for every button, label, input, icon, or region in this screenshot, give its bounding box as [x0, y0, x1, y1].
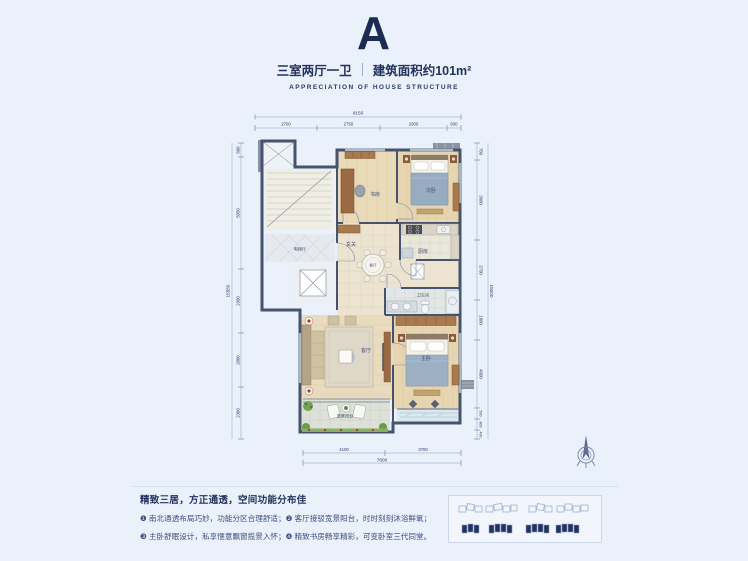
floor-plan-drawing: 电梯厅 书房 次卧 玄关 餐厅 厨房 卫生间 客厅 主卧 宽景阳台 9150 2…	[225, 103, 510, 481]
dim-left-4: 2000	[236, 355, 241, 365]
dim-right-2: 3600	[479, 195, 484, 205]
footer-divider	[132, 486, 618, 487]
label-study: 书房	[370, 191, 380, 198]
dim-top-4: 600	[450, 122, 458, 127]
site-buildings-outline-row	[459, 503, 588, 512]
dim-right-6: 500	[479, 411, 483, 417]
label-elevator-hall: 电梯厅	[294, 246, 307, 253]
selling-points-title: 精致三居，方正通透，空间功能分布佳	[140, 492, 307, 506]
dim-bottom-1: 4100	[339, 447, 349, 452]
dim-chain-left: 15550 600 5050 2900 2000 2300	[226, 143, 245, 439]
area-text: 建筑面积约101m²	[373, 60, 472, 79]
dim-right-5: 4000	[479, 369, 484, 379]
subtitle-en: APPRECIATION OF HOUSE STRUCTURE	[0, 84, 748, 91]
label-foyer: 玄关	[346, 241, 356, 248]
site-buildings-filled-row	[462, 524, 579, 533]
dim-top-1: 2700	[281, 122, 291, 127]
dim-right-total: 15000	[489, 284, 494, 297]
dim-chain-top: 9150 2700 2750 2900 600	[255, 111, 461, 132]
duct-shaft	[411, 264, 424, 279]
dim-bottom-2: 3700	[418, 447, 428, 452]
dim-left-2: 5050	[236, 208, 241, 218]
spec-text: 三室两厅一卫	[277, 60, 352, 79]
label-master: 主卧	[421, 355, 431, 362]
label-balcony: 宽景阳台	[337, 413, 354, 420]
dim-bottom-total: 7800	[377, 458, 388, 463]
spec-row: 三室两厅一卫 建筑面积约101m²	[0, 60, 748, 79]
dim-right-3: 2700	[479, 265, 484, 275]
label-living: 客厅	[361, 347, 371, 354]
dim-top-2: 2750	[344, 122, 354, 127]
dim-top-total: 9150	[353, 111, 364, 116]
selling-points-line1: ❶ 南北通透布局巧妙，功能分区合理舒适；❷ 客厅接驳宽景阳台，时时刻刻沐浴鲜氧；	[140, 513, 431, 524]
unit-letter: A	[0, 6, 748, 60]
dim-right-4: 1800	[479, 315, 484, 325]
label-bathroom: 卫生间	[417, 292, 430, 299]
dim-chain-bottom: 4100 3700 7800	[303, 447, 461, 466]
label-bedroom2: 次卧	[426, 187, 436, 194]
dim-left-3: 2900	[236, 296, 241, 306]
spec-divider	[362, 63, 363, 76]
dim-chain-right: 780 3600 2700 1800 4000 500 800 400 1500…	[474, 143, 494, 439]
dim-top-3: 2900	[409, 122, 419, 127]
dim-right-1: 780	[479, 148, 484, 156]
dim-right-7: 800	[479, 422, 483, 428]
label-dining: 餐厅	[369, 263, 377, 268]
elevator-shaft	[300, 270, 326, 296]
compass-icon	[570, 433, 602, 477]
site-plan-legend	[448, 495, 602, 543]
dim-left-1: 600	[236, 146, 241, 154]
dim-right-8: 400	[479, 432, 483, 438]
dim-left-total: 15550	[226, 284, 231, 297]
selling-points-line2: ❸ 主卧舒眠设计，私享惬意飘窗揽景入怀；❹ 精致书房畅享精彩，可变卧室三代同堂。	[140, 531, 431, 542]
floorplan-page: A 三室两厅一卫 建筑面积约101m² APPRECIATION OF HOUS…	[0, 0, 748, 561]
dim-left-5: 2300	[236, 408, 241, 418]
label-kitchen: 厨房	[418, 248, 428, 255]
